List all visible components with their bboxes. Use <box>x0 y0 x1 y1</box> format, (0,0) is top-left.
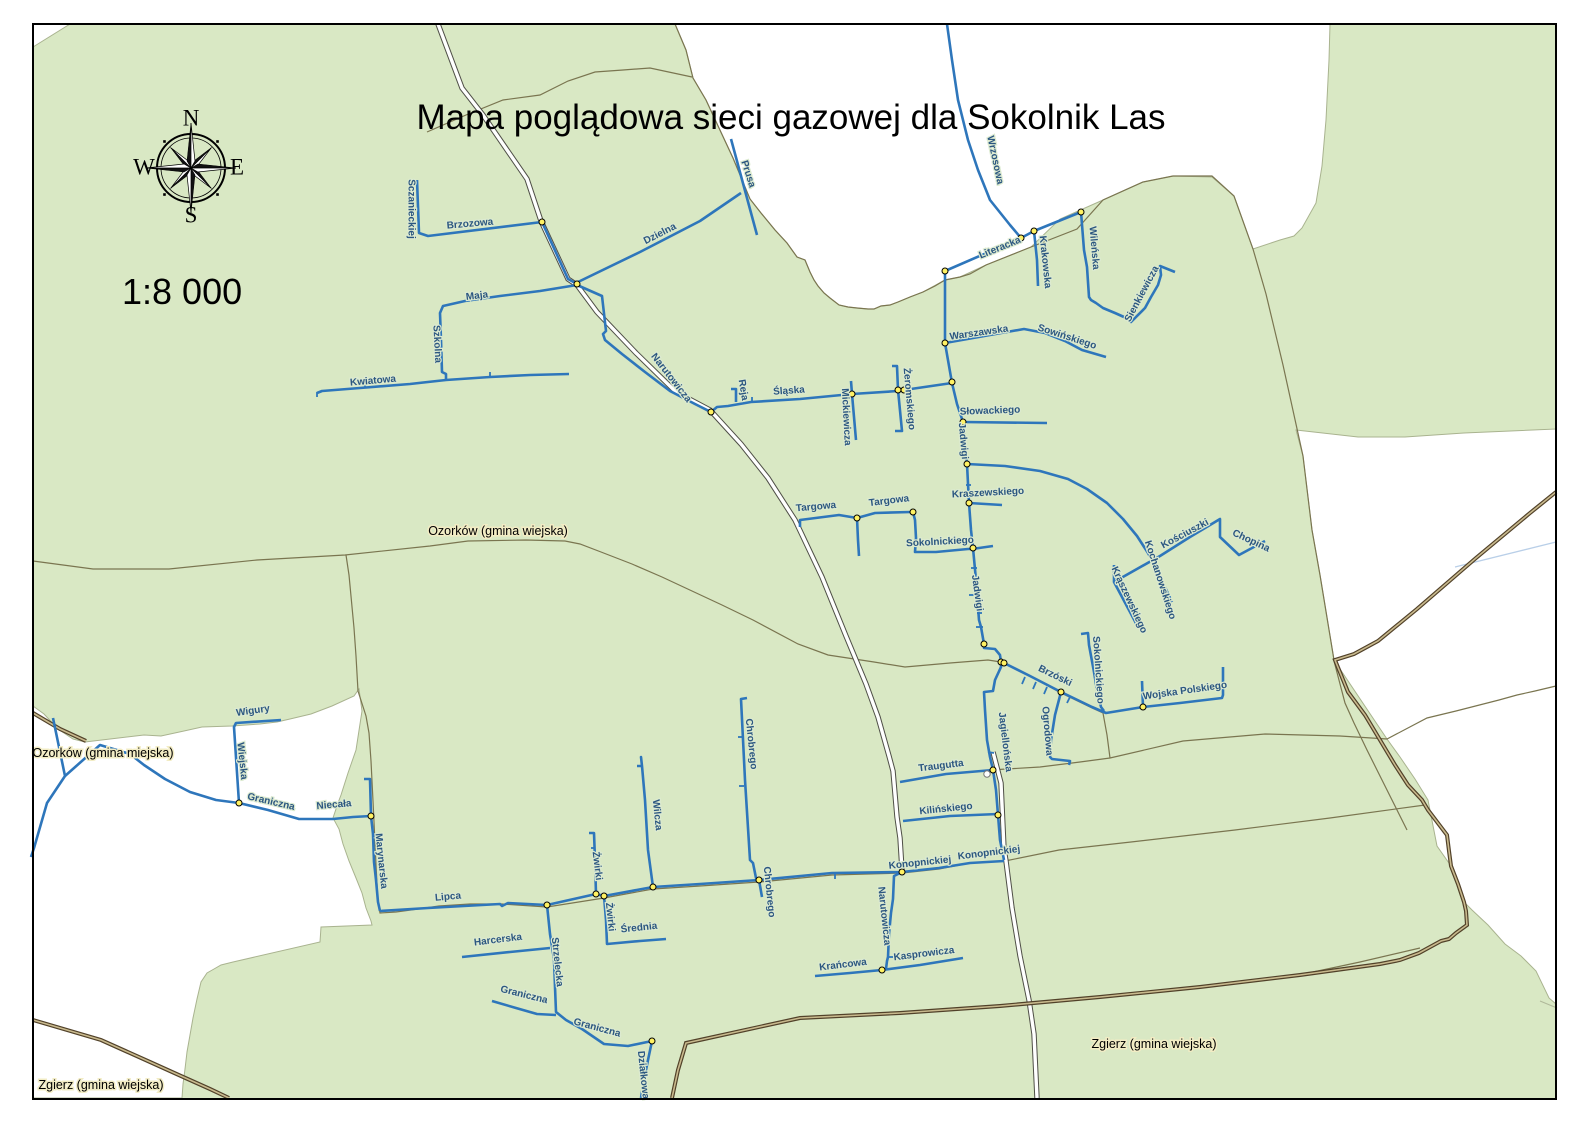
svg-text:Ozorków (gmina wiejska): Ozorków (gmina wiejska) <box>428 524 568 538</box>
svg-text:Ozorków (gmina miejska): Ozorków (gmina miejska) <box>32 746 173 760</box>
svg-text:Zgierz (gmina wiejska): Zgierz (gmina wiejska) <box>1091 1037 1216 1051</box>
svg-text:Mapa poglądowa sieci gazowej d: Mapa poglądowa sieci gazowej dla Sokolni… <box>416 98 1165 137</box>
svg-text:Sczanieckiej: Sczanieckiej <box>405 179 416 239</box>
svg-text:N: N <box>183 105 200 130</box>
svg-text:Zgierz (gmina wiejska): Zgierz (gmina wiejska) <box>38 1078 163 1092</box>
svg-text:Szkolna: Szkolna <box>430 325 443 364</box>
svg-text:W: W <box>133 154 155 179</box>
svg-text:Lipca: Lipca <box>435 890 462 903</box>
svg-text:S: S <box>185 202 198 227</box>
svg-text:1:8 000: 1:8 000 <box>122 271 242 312</box>
svg-text:Słowackiego: Słowackiego <box>960 405 1021 418</box>
svg-text:E: E <box>230 154 244 179</box>
